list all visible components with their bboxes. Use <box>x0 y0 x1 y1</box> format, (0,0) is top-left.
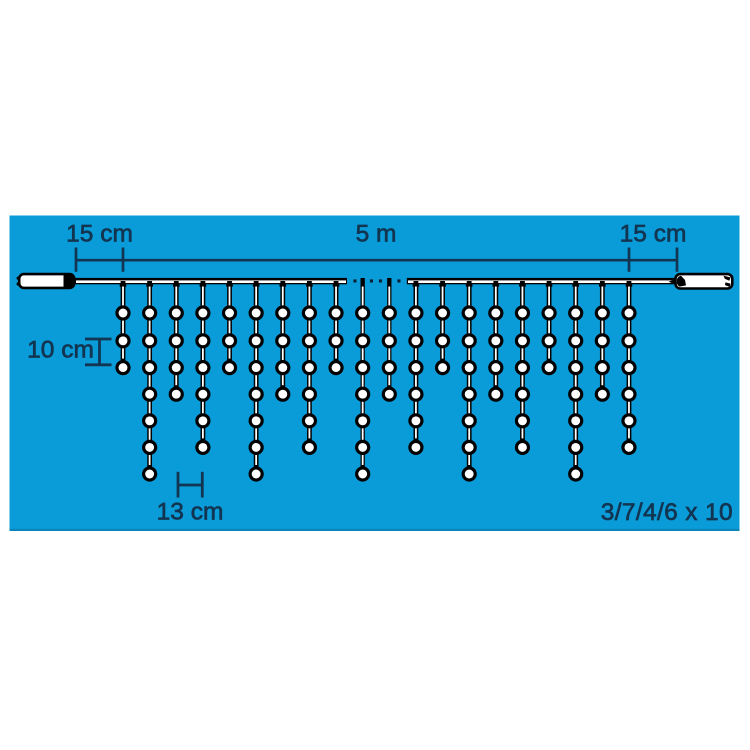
svg-text:13 cm: 13 cm <box>157 499 224 526</box>
svg-text:10 cm: 10 cm <box>27 337 94 364</box>
svg-text:15 cm: 15 cm <box>620 221 687 248</box>
svg-text:3/7/4/6 x 10: 3/7/4/6 x 10 <box>601 499 733 526</box>
svg-text:15 cm: 15 cm <box>66 221 133 248</box>
svg-text:5 m: 5 m <box>356 221 397 248</box>
